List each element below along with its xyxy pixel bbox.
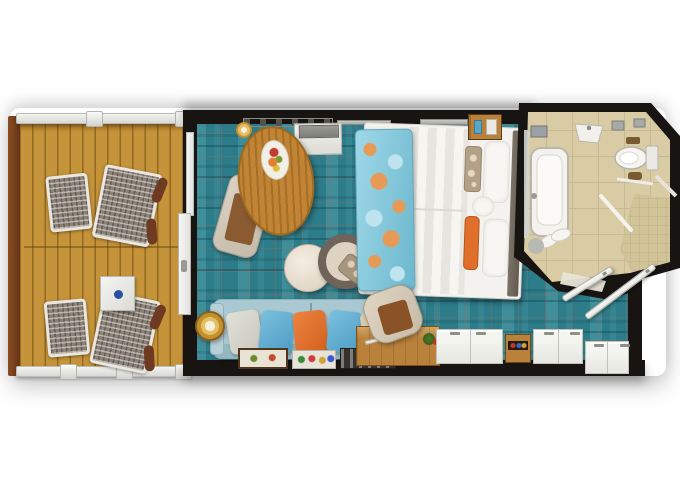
toilet-seat-inner <box>620 152 638 164</box>
tub-faucet <box>531 193 537 199</box>
floor-plan-stage <box>0 0 680 486</box>
bathtub-inner <box>537 155 562 225</box>
toilet-tank <box>646 146 658 170</box>
toilet-accessory <box>628 172 642 180</box>
counter-item <box>634 119 645 127</box>
mirror-strip <box>524 130 529 238</box>
bathroom-group <box>514 103 680 300</box>
bath-mat <box>528 238 544 254</box>
toilet-accessory <box>626 137 640 144</box>
counter-item <box>612 121 624 130</box>
sink-faucet <box>587 126 591 130</box>
counter-item <box>531 126 547 137</box>
room-bathroom <box>0 0 680 486</box>
